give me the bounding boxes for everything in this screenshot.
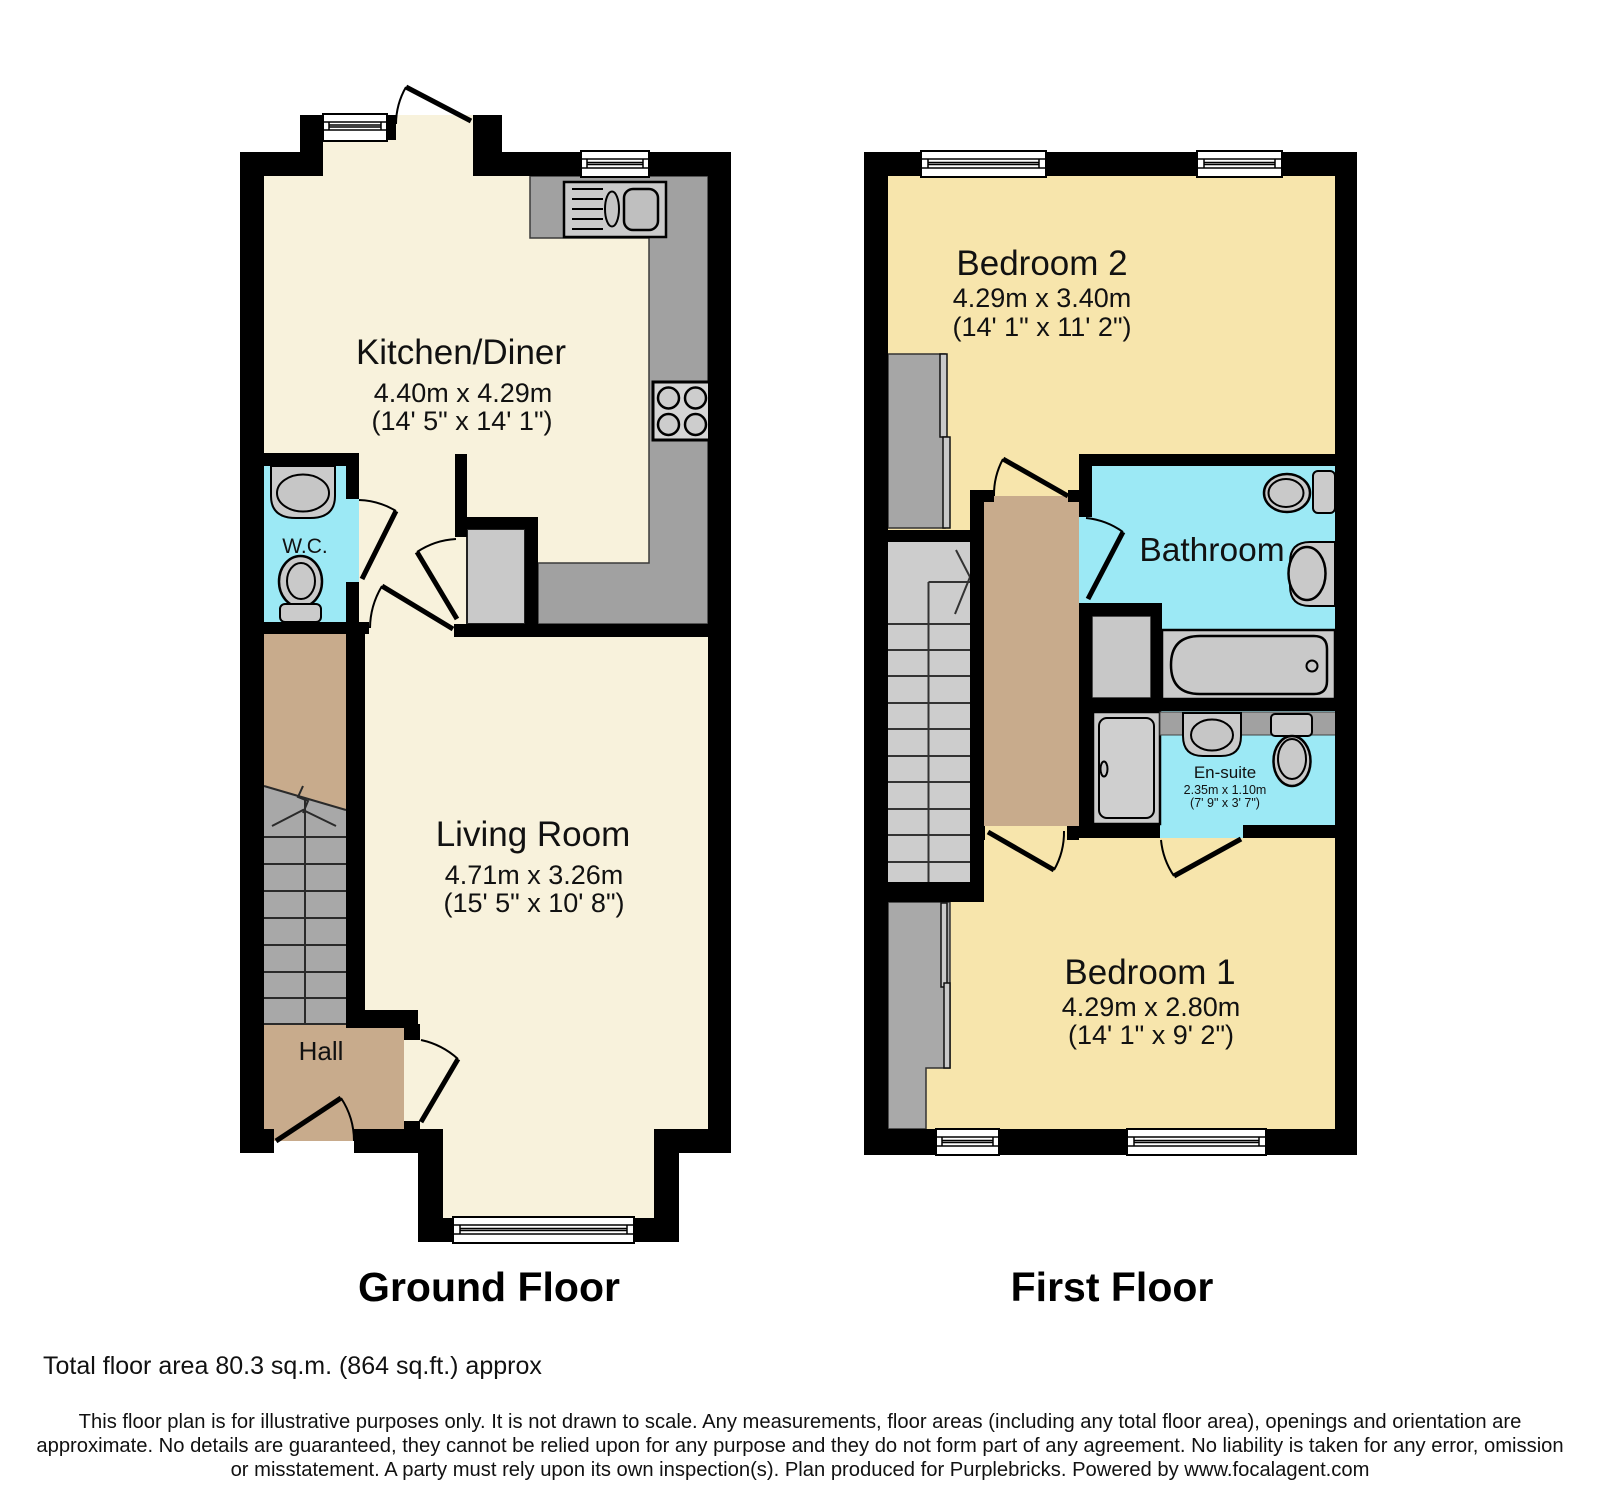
svg-text:or misstatement. A party must: or misstatement. A party must rely upon …	[231, 1459, 1370, 1481]
svg-text:Hall: Hall	[299, 1036, 344, 1066]
svg-text:(7' 9" x 3' 7"): (7' 9" x 3' 7")	[1190, 796, 1260, 810]
svg-text:Total floor area 80.3 sq.m. (8: Total floor area 80.3 sq.m. (864 sq.ft.)…	[43, 1352, 542, 1380]
svg-text:(15' 5" x 10' 8"): (15' 5" x 10' 8")	[443, 888, 624, 918]
svg-text:Bedroom 1: Bedroom 1	[1064, 953, 1235, 992]
svg-text:(14' 1" x 11' 2"): (14' 1" x 11' 2")	[952, 312, 1131, 342]
svg-text:(14' 5" x 14' 1"): (14' 5" x 14' 1")	[371, 406, 552, 436]
svg-text:4.29m x 3.40m: 4.29m x 3.40m	[953, 283, 1132, 313]
svg-text:4.71m x 3.26m: 4.71m x 3.26m	[445, 860, 624, 890]
svg-text:Living Room: Living Room	[436, 815, 631, 854]
svg-text:4.29m x 2.80m: 4.29m x 2.80m	[1062, 992, 1241, 1022]
svg-text:(14' 1" x 9' 2"): (14' 1" x 9' 2")	[1068, 1020, 1234, 1050]
svg-text:Bathroom: Bathroom	[1139, 532, 1284, 569]
svg-text:En-suite: En-suite	[1194, 763, 1256, 782]
svg-text:Kitchen/Diner: Kitchen/Diner	[356, 333, 566, 372]
svg-text:approximate. No details are gu: approximate. No details are guaranteed, …	[36, 1435, 1563, 1457]
svg-text:4.40m x 4.29m: 4.40m x 4.29m	[374, 378, 553, 408]
svg-text:This floor plan is for illustr: This floor plan is for illustrative purp…	[79, 1411, 1522, 1433]
svg-text:First Floor: First Floor	[1011, 1264, 1214, 1310]
svg-text:Bedroom 2: Bedroom 2	[956, 244, 1127, 283]
svg-text:Ground Floor: Ground Floor	[358, 1264, 620, 1310]
svg-text:W.C.: W.C.	[282, 535, 328, 558]
svg-text:2.35m x 1.10m: 2.35m x 1.10m	[1184, 783, 1267, 797]
